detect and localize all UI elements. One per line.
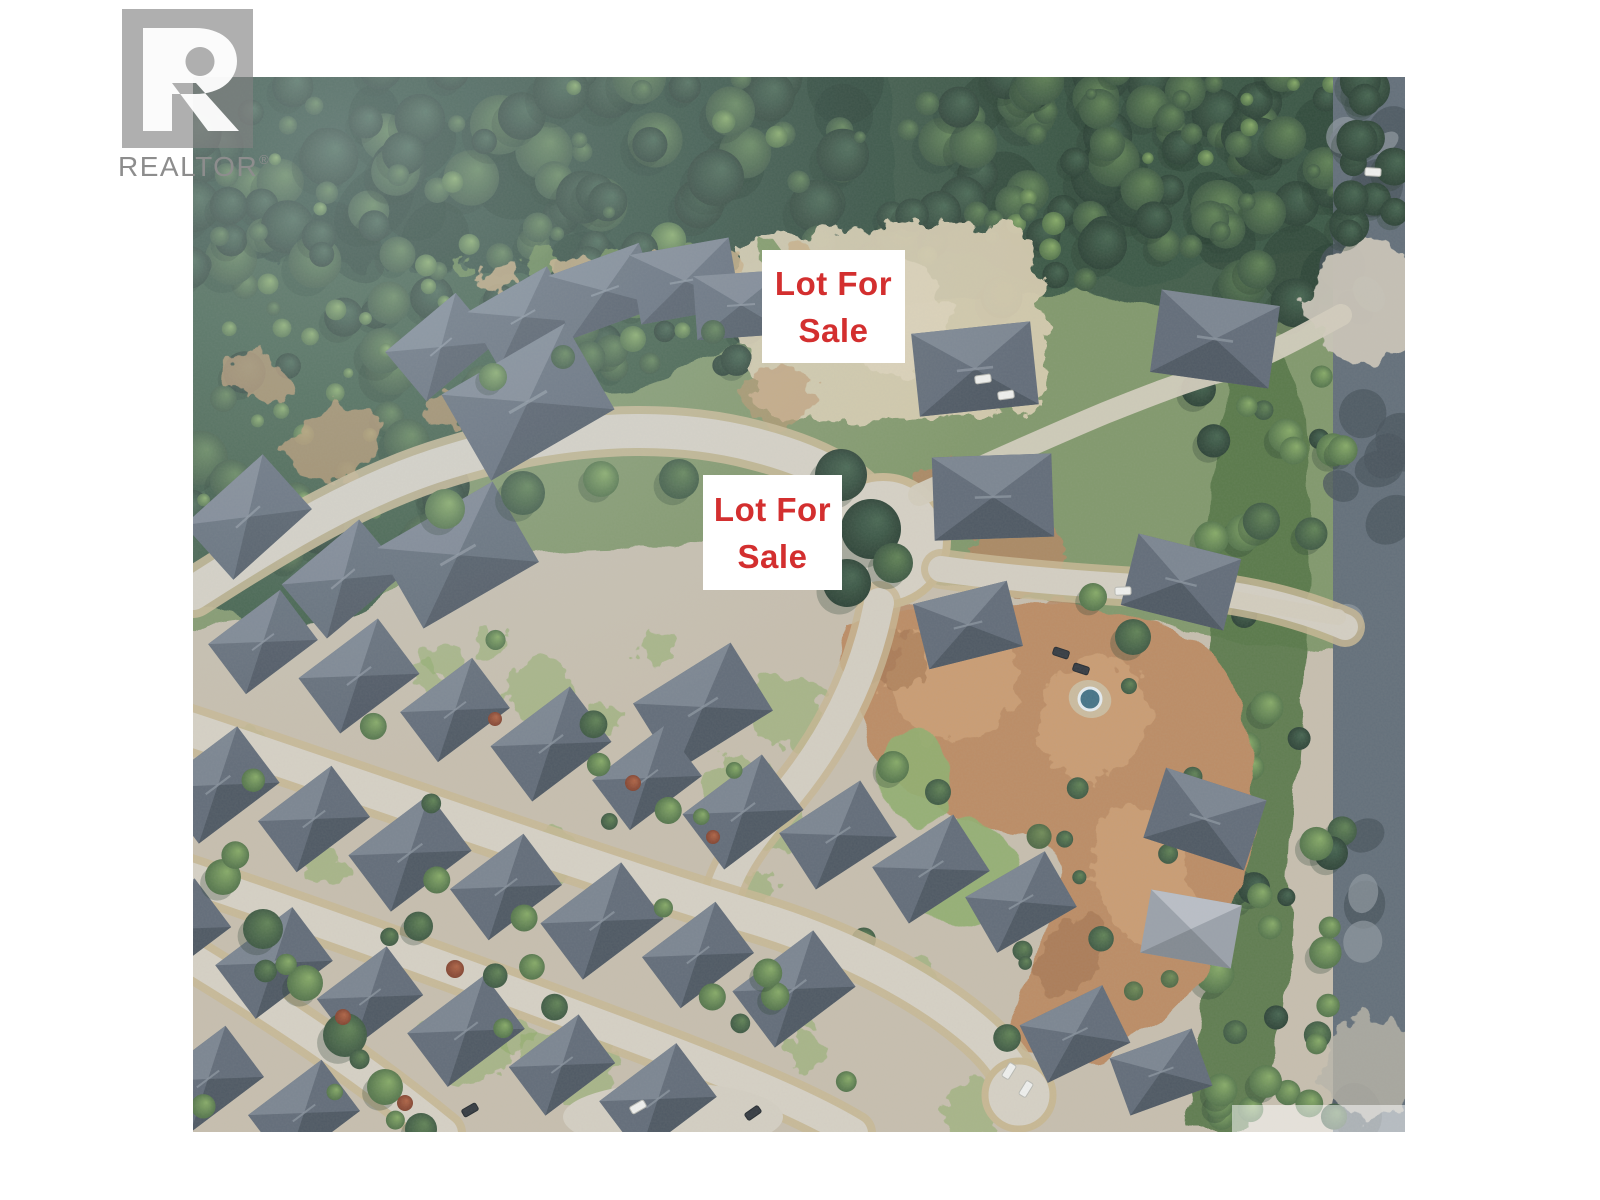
registered-trademark-symbol: ® [259, 152, 270, 167]
aerial-photo [193, 77, 1405, 1132]
lot-for-sale-label-1: Lot For Sale [762, 250, 905, 363]
lot-label-line2: Sale [762, 307, 905, 354]
aerial-photo-illustration [193, 77, 1405, 1132]
lot-for-sale-label-2: Lot For Sale [703, 475, 842, 590]
lot-label-line1: Lot For [703, 486, 842, 533]
realtor-wordmark: REALTOR® [118, 151, 278, 183]
lot-label-line1: Lot For [762, 260, 905, 307]
realtor-wordmark-text: REALTOR [118, 151, 258, 182]
realtor-logo: REALTOR® [118, 9, 278, 183]
watermark-band [1232, 1105, 1405, 1132]
atmosphere-layer [193, 77, 1405, 1132]
realtor-r-icon [122, 9, 253, 148]
flyer-canvas: Lot For Sale Lot For Sale REALTOR® [0, 0, 1600, 1200]
lot-label-line2: Sale [703, 533, 842, 580]
